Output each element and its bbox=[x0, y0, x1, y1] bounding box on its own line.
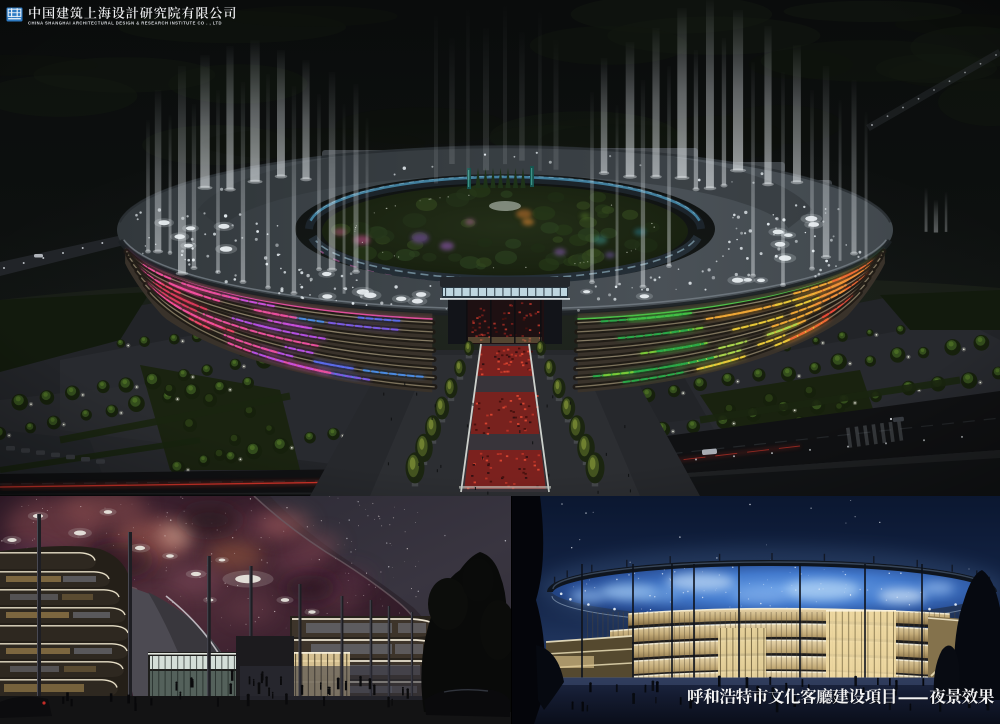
svg-text:CHINA SHANGHAI ARCHITECTURAL D: CHINA SHANGHAI ARCHITECTURAL DESIGN & RE… bbox=[28, 21, 222, 27]
